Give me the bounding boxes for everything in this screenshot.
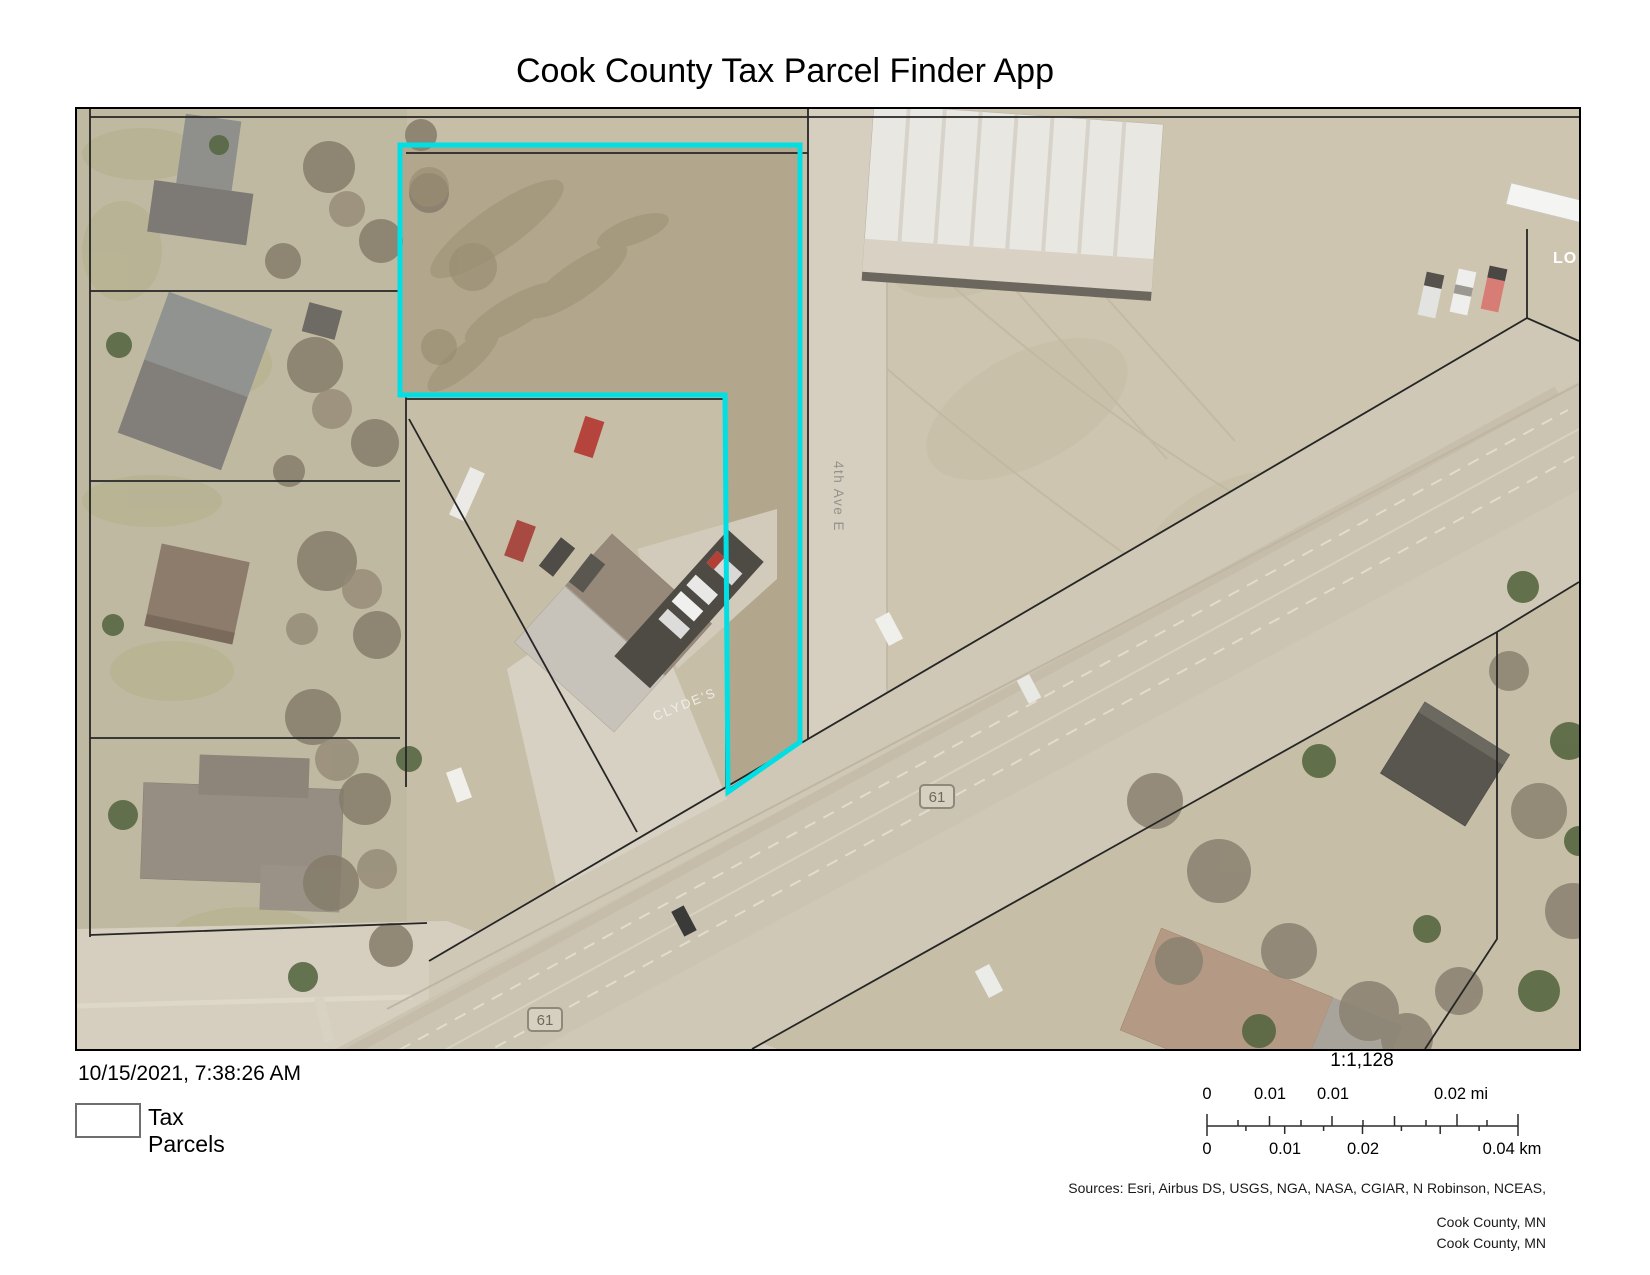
scale-bar xyxy=(1195,1112,1530,1140)
map-timestamp: 10/15/2021, 7:38:26 AM xyxy=(78,1062,301,1086)
map-view[interactable]: CLYDE'S xyxy=(75,107,1581,1051)
building-large-warehouse xyxy=(862,109,1164,301)
scale-km-label-1: 0.01 xyxy=(1245,1140,1325,1159)
sources-attribution: Sources: Esri, Airbus DS, USGS, NGA, NAS… xyxy=(946,1180,1546,1196)
page-title: Cook County Tax Parcel Finder App xyxy=(0,52,1570,91)
aerial-imagery: CLYDE'S xyxy=(77,109,1579,1049)
highway-shield-number: 61 xyxy=(537,1012,554,1029)
edge-cutoff-label: LO xyxy=(1553,250,1577,267)
scale-mi-label-3: 0.02 mi xyxy=(1421,1085,1501,1104)
scale-km-label-0: 0 xyxy=(1167,1140,1247,1159)
scale-mi-label-2: 0.01 xyxy=(1293,1085,1373,1104)
street-label: 4th Ave E xyxy=(831,461,846,532)
scale-ratio: 1:1,128 xyxy=(1262,1050,1462,1072)
credit-line-2: Cook County, MN xyxy=(1246,1235,1546,1251)
highway-shield-number: 61 xyxy=(929,789,946,806)
scale-km-label-2: 0.02 xyxy=(1323,1140,1403,1159)
tax-parcel-swatch xyxy=(75,1103,141,1138)
highway-shield-2: 61 xyxy=(528,1008,562,1031)
credit-line-1: Cook County, MN xyxy=(1246,1214,1546,1230)
legend-label: Tax Parcels xyxy=(148,1104,225,1158)
scale-km-label-3: 0.04 km xyxy=(1472,1140,1552,1159)
highway-shield-1: 61 xyxy=(920,785,954,808)
